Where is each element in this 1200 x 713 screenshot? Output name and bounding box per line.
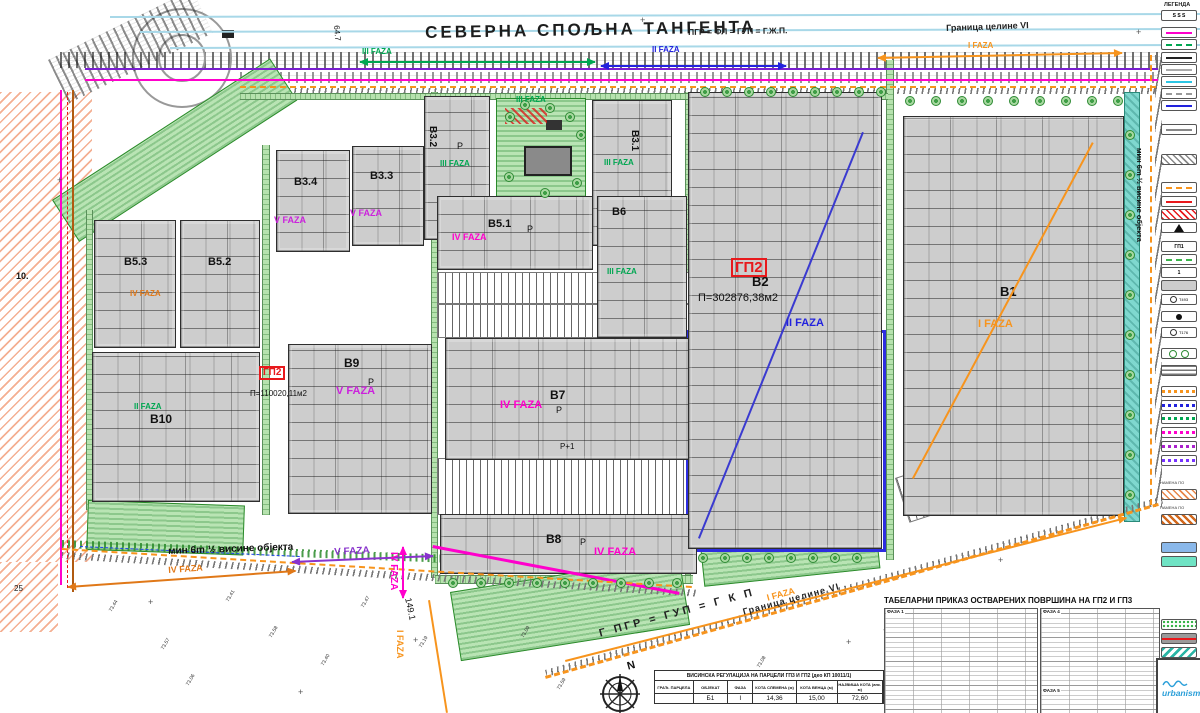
building-block-B9 (288, 344, 432, 514)
legend-symbol-fill-17 (1161, 280, 1197, 291)
legend-red-strike (1162, 638, 1196, 640)
legend-caption: НАМЕНА ПО (1160, 505, 1184, 510)
map-line-14 (1150, 55, 1152, 505)
road-verge-speckle-top2 (240, 72, 1158, 83)
arrowhead-end (1114, 49, 1123, 57)
arrowhead-start (67, 582, 77, 591)
phase-4-dim-left: IV FAZA (168, 564, 203, 575)
building-block-B1 (903, 116, 1124, 516)
legend-line (1166, 129, 1192, 131)
legend-symbol-hatchh-22 (1161, 365, 1197, 376)
arrowhead-end (587, 58, 596, 66)
legend-line (1166, 69, 1192, 71)
arrowhead-start (359, 58, 368, 66)
tree-icon (905, 96, 915, 106)
tree-icon (588, 578, 598, 588)
legend-symbol-dots-35 (1161, 619, 1197, 630)
tree-icon (766, 87, 776, 97)
out-of-plan-hatch-left-bottom (0, 562, 58, 632)
spot-height: 73.58 (268, 625, 279, 639)
survey-cross-icon: + (148, 598, 153, 607)
out-of-plan-hatch-left (0, 92, 92, 562)
tree-icon (983, 96, 993, 106)
legend-circle-icon (1170, 329, 1177, 336)
legend-symbol-text-0: Ѕ Ѕ Ѕ (1161, 10, 1197, 21)
spot-height: 73.40 (320, 653, 331, 667)
green-strip-v5 (886, 60, 894, 560)
tree-icon (504, 578, 514, 588)
legend-circle-icon (1170, 296, 1177, 303)
tree-icon (744, 87, 754, 97)
legend-caption: НАМЕНА ПО (1160, 480, 1184, 485)
building-label-B5.3: B5.3 (124, 256, 147, 268)
tree-icon (1087, 96, 1097, 106)
spot-height: 73.44 (108, 599, 119, 613)
map-line-0 (110, 13, 1200, 18)
phase-5-dim: V FAZA (334, 546, 370, 558)
tree-icon (576, 130, 586, 140)
tree-icon (854, 87, 864, 97)
tree-icon (476, 578, 486, 588)
tree-icon (560, 578, 570, 588)
spot-height: 73.57 (160, 637, 171, 651)
legend-symbol-dot-19 (1161, 311, 1197, 322)
legend-symbol-line-11 (1161, 196, 1197, 207)
legend-dash (1166, 44, 1192, 46)
phase-1-top-arrow: I FAZA (968, 42, 993, 50)
tree-icon (448, 578, 458, 588)
height-table-col-5: НАЈВИША КОТА (апс. м) (838, 681, 883, 693)
urbanism-logo: urbanism (1156, 658, 1200, 713)
phase-4-dim: IV FAZA (388, 552, 398, 590)
legend-symbol-hatchd-32 (1161, 514, 1197, 525)
height-table-title: ВИСИНСКА РЕГУЛАЦИЈА НА ПАРЦЕЛИ ГП3 И ГП2… (655, 671, 883, 680)
tree-icon (504, 172, 514, 182)
tree-icon (1125, 450, 1135, 460)
building-block-B3.4 (276, 150, 350, 252)
spot-height: 73.59 (556, 677, 567, 691)
legend-symbol-strike-36 (1161, 633, 1197, 644)
tree-icon (672, 578, 682, 588)
tree-icon (720, 553, 730, 563)
parking-p-5: Р (368, 378, 374, 387)
spot-height: 73.19 (418, 635, 429, 649)
legend-line (1166, 105, 1192, 107)
spot-height: 73.06 (185, 673, 196, 687)
building-label-B6: B6 (612, 206, 626, 218)
tree-icon (540, 188, 550, 198)
tree-icon (786, 553, 796, 563)
building-label-B9: B9 (344, 356, 359, 370)
arrowhead-end (287, 567, 297, 576)
height-table-row: Б1I14,3615,0072,60 (655, 693, 883, 703)
map-line-4 (85, 79, 1158, 81)
phase-5-b33: V FAZA (350, 209, 382, 218)
legend-line (1166, 81, 1192, 83)
map-line-7 (67, 92, 68, 588)
legend-symbol-icon-20: Т176 (1161, 327, 1197, 338)
tree-icon (1125, 410, 1135, 420)
map-line-5 (60, 90, 62, 585)
height-table-cell-3: 14,36 (753, 694, 796, 703)
height-table-col-1: ОБЈЕКАТ (694, 681, 728, 693)
arrowhead-end (778, 62, 787, 70)
phase-3-b32: III FAZA (440, 160, 470, 168)
tree-icon (545, 103, 555, 113)
phase-2-top-arrow: II FAZA (652, 46, 680, 54)
legend-triangle-icon (1174, 224, 1184, 232)
legend-symbol-dashbox-24 (1161, 400, 1197, 411)
arrowhead-end (425, 552, 434, 560)
tree-icon (957, 96, 967, 106)
legend-symbol-line-3 (1161, 52, 1197, 63)
tree-icon (700, 87, 710, 97)
arrowhead-end (1118, 514, 1129, 524)
legend-symbol-hatch-9 (1161, 154, 1197, 165)
tree-icon (810, 87, 820, 97)
areas-table-right (1040, 608, 1160, 713)
building-label-B5.2: B5.2 (208, 256, 231, 268)
compass-north-label: N (626, 660, 637, 673)
legend-symbol-hatch-30 (1161, 489, 1197, 500)
legend-symbol-dashbox-23 (1161, 386, 1197, 397)
park-structure-small (546, 120, 562, 130)
map-line-6 (72, 90, 74, 592)
building-label-B7: B7 (550, 388, 565, 402)
dim-149: 149.1 (403, 597, 416, 621)
height-table-col-0: ГРАЂ. ПАРЦЕЛА (655, 681, 694, 693)
height-table-col-4: КОТА ВЕНЦА (м) (797, 681, 838, 693)
setback-note-right: мин 6m ½ висине објекта (1136, 148, 1144, 242)
arrowhead-start (291, 558, 300, 566)
legend-symbol-line-8 (1161, 124, 1197, 135)
tree-icon (505, 112, 515, 122)
legend-dash (1166, 187, 1192, 189)
legend-symbol-dash-10 (1161, 182, 1197, 193)
legend-symbol-tri-13 (1161, 222, 1197, 233)
dim-647: 64.7 (332, 25, 341, 41)
building-label-B3.2: B3.2 (427, 126, 438, 147)
arrowhead-start (600, 62, 609, 70)
height-table-col-3: КОТА СЛЕМЕНА (м) (753, 681, 796, 693)
phase-2-b10: II FAZA (134, 403, 162, 411)
tree-icon (1125, 250, 1135, 260)
survey-cross-icon: + (57, 176, 62, 185)
tree-icon (788, 87, 798, 97)
building-label-B8: B8 (546, 532, 561, 546)
legend-symbol-hatch-12 (1161, 209, 1197, 220)
tree-icon (830, 553, 840, 563)
building-label-B5.1: B5.1 (488, 218, 511, 230)
legend-symbol-circles-21 (1161, 348, 1197, 359)
survey-cross-icon: + (998, 556, 1003, 565)
tree-icon (852, 553, 862, 563)
parcel-gp2-small: ГП2 (259, 366, 285, 380)
tree-icon (722, 87, 732, 97)
phase-4-b7: IV FAZA (500, 400, 542, 411)
height-table-cell-4: 15,00 (797, 694, 838, 703)
tree-icon (1125, 370, 1135, 380)
tree-icon (1125, 130, 1135, 140)
parking-p1-b7: Р+1 (560, 443, 574, 451)
phase-1-dim-left: I FAZA (395, 630, 404, 659)
legend-symbol-icon-18: Т493 (1161, 294, 1197, 305)
tree-icon (742, 553, 752, 563)
legend-symbol-dashbox-28 (1161, 455, 1197, 466)
logo-wordmark: urbanism (1162, 688, 1200, 698)
parking-p-4: Р (580, 538, 586, 547)
legend-symbol-dashbox-26 (1161, 427, 1197, 438)
building-block-B8 (440, 514, 697, 574)
tree-icon (832, 87, 842, 97)
phase-5-b9: V FAZA (336, 386, 375, 397)
legend-title: ЛЕГЕНДА (1164, 2, 1190, 8)
arrowhead-start (877, 54, 886, 62)
map-line-8 (240, 86, 1156, 88)
spot-height: 73.47 (360, 595, 371, 609)
tree-icon (1009, 96, 1019, 106)
survey-cross-icon: + (298, 688, 303, 697)
areas-table-left (884, 608, 1038, 713)
tree-icon (876, 87, 886, 97)
height-table-cell-5: 72,60 (838, 694, 883, 703)
tree-icon (931, 96, 941, 106)
map-line-2 (170, 44, 1200, 49)
tree-icon (1113, 96, 1123, 106)
legend-symbol-dashbox-27 (1161, 441, 1197, 452)
phase-4-b5x: IV FAZA (130, 290, 161, 298)
park-structure (524, 146, 572, 176)
building-label-B10: B10 (150, 412, 172, 426)
tree-icon (764, 553, 774, 563)
areas-table-section-3: ФАЗА 5 (1042, 688, 1061, 693)
legend-line (1166, 57, 1192, 59)
tree-icon (572, 178, 582, 188)
building-label-B3.1: B3.1 (629, 130, 640, 151)
building-label-B3.3: B3.3 (370, 170, 393, 182)
areas-table-title: ТАБЕЛАРНИ ПРИКАЗ ОСТВАРЕНИХ ПОВРШИНА НА … (884, 596, 1132, 605)
legend-dash (1166, 93, 1192, 95)
dim-arrow-0 (360, 61, 595, 63)
legend-symbol-fill-33 (1161, 542, 1197, 553)
areas-table-section-2: ФАЗА 4 (1042, 609, 1061, 614)
legend-green-circle-icon (1181, 350, 1189, 358)
phase-3-b31: III FAZA (604, 159, 634, 167)
area-b9: П=110020,11м2 (250, 390, 307, 398)
compass-rose: N (596, 664, 648, 713)
height-regulation-table: ВИСИНСКА РЕГУЛАЦИЈА НА ПАРЦЕЛИ ГП3 И ГП2… (654, 670, 884, 704)
legend-symbol-stripes-37 (1161, 647, 1197, 658)
site-plan-map: B10B5.3B5.2B3.4B3.3B9B3.2B3.1B5.1B6B7B8B… (0, 0, 1200, 713)
legend-line (1166, 32, 1192, 34)
height-table-header: ГРАЂ. ПАРЦЕЛАОБЈЕКАТФАЗАКОТА СЛЕМЕНА (м)… (655, 680, 883, 693)
legend-symbol-line-1 (1161, 27, 1197, 38)
phase-4-b8: IV FAZA (594, 547, 636, 558)
legend-green-circle-icon (1169, 350, 1177, 358)
survey-cross-icon: + (413, 636, 418, 645)
parking-p-1: Р (457, 142, 463, 151)
tree-icon (565, 112, 575, 122)
building-label-B3.4: B3.4 (294, 176, 317, 188)
survey-cross-icon: + (846, 638, 851, 647)
tree-icon (1061, 96, 1071, 106)
legend-symbol-text-14: ГП1 (1161, 241, 1197, 252)
label-25: 25 (14, 585, 23, 593)
green-strip-v2 (262, 145, 270, 515)
legend-symbol-dashbox-25 (1161, 413, 1197, 424)
label-10: 10. (16, 272, 29, 281)
tree-icon (808, 553, 818, 563)
legend-symbol-text-16: 1 (1161, 267, 1197, 278)
phase-4-b51: IV FAZA (452, 233, 487, 242)
tree-icon (698, 553, 708, 563)
border-label-top: Граница целине VI (946, 21, 1029, 33)
area-b2: П=302876,38м2 (698, 293, 778, 304)
map-line-3 (85, 68, 1158, 70)
logo-script-icon (1162, 678, 1188, 688)
phase-3-top-arrow: III FAZA (362, 48, 392, 56)
legend-symbol-line-7 (1161, 100, 1197, 111)
dim-arrow-1 (601, 65, 786, 67)
legend-dash (1166, 259, 1192, 261)
height-table-cell-0 (655, 694, 694, 703)
parking-strip-3 (437, 458, 697, 515)
plan-equation-top: ПГР = ФЛ = ГУП = Г.Ж.П. (688, 26, 788, 36)
height-table-cell-1: Б1 (694, 694, 728, 703)
building-block-B10 (92, 352, 260, 502)
spot-height: 73.41 (225, 589, 236, 603)
height-table-cell-2: I (728, 694, 753, 703)
tree-icon (1125, 170, 1135, 180)
phase-1-b1: I FAZA (978, 319, 1013, 330)
arrowhead-start (399, 546, 407, 555)
phase-2-b2: II FAZA (786, 318, 824, 329)
tree-icon (644, 578, 654, 588)
tree-icon (616, 578, 626, 588)
tree-icon (1125, 330, 1135, 340)
building-block-B3.3 (352, 146, 424, 246)
legend-symbol-dash-2 (1161, 39, 1197, 50)
legend-symbol-dash-15 (1161, 254, 1197, 265)
legend-symbol-fill-34 (1161, 556, 1197, 567)
survey-cross-icon: + (1136, 28, 1141, 37)
legend-dot-icon (1176, 314, 1182, 320)
phase-3-b6: III FAZA (607, 268, 637, 276)
parking-p-2: Р (527, 225, 533, 234)
dim-arrow-5 (402, 547, 404, 598)
parcel-gp2-main: ГП2 (731, 258, 767, 277)
spot-height: 73.08 (756, 655, 767, 669)
building-block-B5.2 (180, 220, 260, 348)
map-line-13 (428, 600, 448, 713)
height-table-col-2: ФАЗА (728, 681, 753, 693)
legend-symbol-line-4 (1161, 64, 1197, 75)
areas-table-section-1: ФАЗА 1 (886, 609, 905, 614)
tree-icon (1035, 96, 1045, 106)
tree-icon (1125, 210, 1135, 220)
legend-symbol-line-5 (1161, 76, 1197, 87)
phase-5-b34: V FAZA (274, 216, 306, 225)
tree-icon (1125, 490, 1135, 500)
building-block-B5.3 (94, 220, 176, 348)
tree-icon (532, 578, 542, 588)
legend-symbol-dash-6 (1161, 88, 1197, 99)
tree-icon (1125, 290, 1135, 300)
legend-line (1166, 201, 1192, 203)
phase-3-top-center: III FAZA (516, 96, 546, 104)
compass-icon (596, 664, 648, 713)
parking-p-3: Р (556, 406, 562, 415)
